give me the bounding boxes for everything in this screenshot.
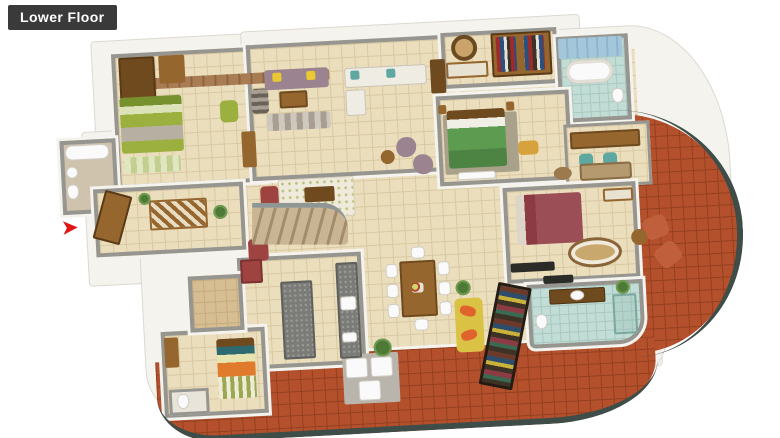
kitchen-sink [342, 332, 358, 343]
floorplan-canvas: Lower Floor [0, 0, 780, 438]
bed-olive [119, 95, 184, 154]
rug-stripes [124, 155, 181, 174]
armchair-striped [251, 88, 269, 114]
dresser [241, 131, 257, 168]
armchair-olive [220, 100, 239, 123]
floorplan-3d-view: ➤ [0, 0, 780, 438]
bath-mat-dark [543, 274, 573, 284]
cushion-teal [350, 70, 359, 79]
dining-chair [410, 246, 425, 259]
coffee-table [279, 90, 308, 108]
room-store [188, 274, 245, 333]
dining-chair [437, 261, 450, 276]
dining-chair [414, 318, 429, 331]
bathtub [65, 144, 110, 161]
swivel-chair [413, 154, 434, 175]
console-dark [304, 186, 335, 203]
dining-chair [386, 284, 399, 299]
bed-maroon [515, 192, 584, 245]
sofa-striped [266, 111, 331, 131]
nightstand [506, 101, 514, 110]
tv-unit [430, 59, 447, 94]
stove [340, 296, 357, 311]
dining-chair [385, 264, 398, 279]
lounger-yellow [518, 140, 539, 155]
dining-centerpiece [411, 282, 424, 293]
refrigerator-red [240, 259, 263, 284]
cushion-teal [386, 69, 395, 78]
cushion-yellow [272, 72, 281, 81]
wardrobe [118, 56, 156, 102]
bed-green [446, 108, 507, 169]
nightstand [438, 105, 446, 114]
staircase [252, 203, 348, 245]
sofa-corner [345, 89, 366, 116]
dining-chair [438, 281, 451, 296]
dining-chair [387, 304, 400, 319]
tallboy-cabinet [158, 55, 185, 84]
floor-label-badge: Lower Floor [8, 5, 117, 30]
cushion-yellow [306, 71, 315, 80]
blue-tile-wall [558, 36, 623, 59]
entry-arrow-icon: ➤ [61, 216, 88, 241]
floor-label: Lower Floor [20, 9, 105, 25]
hanging-clothes [496, 36, 518, 72]
dressing-drawers [446, 61, 489, 79]
bathtub-oval [565, 58, 614, 84]
console-table [149, 198, 208, 231]
dining-chair [439, 301, 452, 316]
hanging-clothes [524, 35, 546, 71]
kitchen-island [280, 280, 316, 360]
